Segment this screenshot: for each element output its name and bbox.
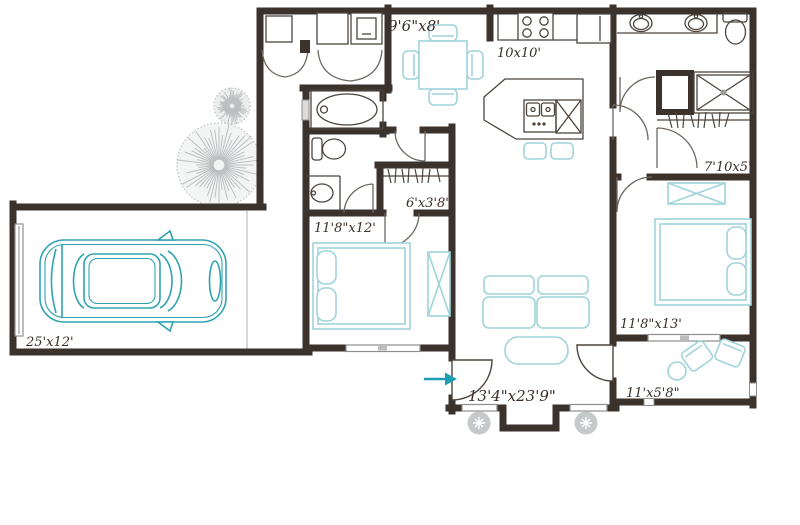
- chair-icon: [429, 89, 457, 105]
- living-label: 13'4"x23'9": [468, 387, 556, 405]
- pillow-icon: [317, 251, 336, 284]
- walkin-closet-label: 7'10x5': [704, 160, 752, 175]
- tree-icon: [177, 123, 261, 207]
- floor-plan: 9'6"x8' 10x10' 7'10x5' 6'x3'8" 11'8"x12'…: [0, 0, 800, 525]
- dresser-icon: [668, 183, 725, 204]
- fridge-icon: [577, 14, 611, 43]
- bar-stool-icon: [524, 143, 546, 159]
- laundry-area: [266, 13, 382, 53]
- shower-icon: [694, 72, 753, 113]
- patio-door-icon: [577, 345, 613, 381]
- bedroom1-label: 11'8"x12': [314, 221, 376, 236]
- washer-icon: [317, 13, 348, 44]
- garage-label: 25'x12': [25, 335, 74, 350]
- pillow-icon: [727, 227, 746, 259]
- bathtub-icon: [311, 90, 383, 129]
- sofa-icon: [483, 276, 589, 328]
- kitchen-label: 10x10': [497, 46, 541, 61]
- dresser-icon: [428, 252, 450, 316]
- dining-table-icon: [403, 25, 483, 105]
- chair-icon: [403, 51, 419, 79]
- tree-icon: [214, 88, 250, 125]
- patio-table-icon: [668, 362, 686, 380]
- car-icon: [40, 231, 226, 331]
- patio-label: 11'x5'8": [626, 386, 680, 401]
- bed-icon: [313, 243, 410, 329]
- kitchen: [484, 13, 613, 139]
- bedroom2-label: 11'8"x13': [620, 317, 682, 332]
- chair-icon: [467, 51, 483, 79]
- bed-icon: [655, 219, 751, 305]
- bar-stool-icon: [551, 143, 573, 159]
- water-heater-icon: [266, 16, 292, 42]
- dining-label: 9'6"x8': [388, 17, 440, 35]
- ottoman-icon: [505, 337, 568, 364]
- bathroom-1: [306, 90, 383, 211]
- floor-plan-drawing: 9'6"x8' 10x10' 7'10x5' 6'x3'8" 11'8"x12'…: [0, 0, 800, 525]
- toilet-icon: [312, 138, 322, 160]
- sink-icon: [311, 184, 333, 202]
- linen-closet: [659, 73, 691, 112]
- dryer-door: [357, 18, 376, 39]
- hall-closet-label: 6'x3'8": [406, 196, 451, 211]
- patio-chair-icon: [714, 338, 746, 368]
- pillow-icon: [727, 263, 746, 295]
- pillow-icon: [317, 288, 336, 321]
- walls: [13, 8, 753, 428]
